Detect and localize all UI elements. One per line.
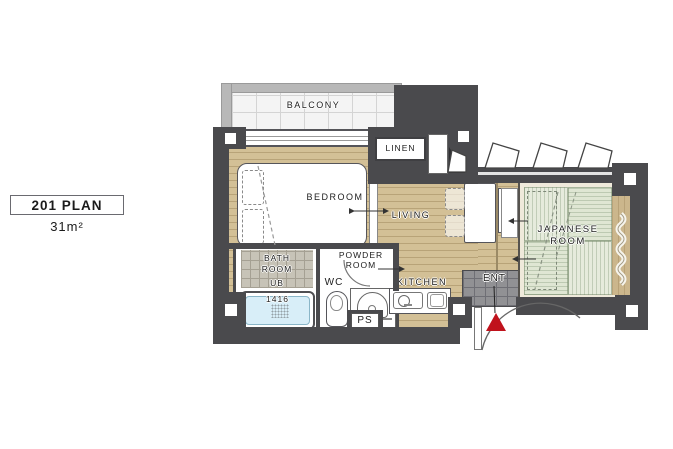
- floor-step-line: [496, 183, 498, 275]
- living-label: LIVING: [385, 210, 437, 220]
- japanese-room-label-line1: JAPANESE: [524, 224, 612, 235]
- wc-label: WC: [320, 277, 348, 288]
- column-marker: [457, 130, 470, 143]
- bathtub-size-label: 1416: [244, 294, 311, 304]
- powder-label-line1: POWDER: [326, 250, 396, 260]
- kitchen-counter: [389, 288, 451, 314]
- column-marker: [224, 132, 237, 145]
- wall-segment: [393, 243, 399, 291]
- bath-unit-label: UB: [241, 278, 313, 288]
- wall-segment: [316, 246, 320, 332]
- interior-door: [428, 134, 448, 174]
- chair: [445, 188, 465, 210]
- japanese-room-side-strip: [612, 187, 631, 295]
- kitchen-label: KITCHEN: [394, 277, 450, 287]
- balcony-railing-left: [221, 83, 232, 131]
- swing-window-icon: [485, 143, 519, 168]
- plan-area: 31m²: [10, 219, 124, 235]
- wall-segment: [394, 85, 478, 130]
- balcony-floor: [231, 92, 395, 131]
- swing-window-icon: [578, 143, 612, 168]
- wall-segment: [213, 327, 460, 344]
- pipe-space-label: PS: [351, 315, 379, 326]
- floor-plan-page: 201 PLAN 31m² BALCONY BEDROOM LIVING BAT…: [0, 0, 673, 449]
- column-marker: [452, 303, 466, 316]
- bathtub-hatch: [271, 304, 289, 318]
- sliding-door-bedroom: [369, 184, 378, 244]
- balcony-label: BALCONY: [232, 100, 395, 110]
- column-marker: [625, 304, 639, 318]
- plan-title: 201 PLAN: [10, 195, 124, 215]
- chair: [445, 215, 465, 237]
- dining-table: [464, 183, 496, 243]
- bedroom-label: BEDROOM: [295, 192, 375, 202]
- window-in-wall: [478, 172, 612, 175]
- japanese-room-label-line2: ROOM: [524, 236, 612, 247]
- balcony-railing-top: [221, 83, 402, 93]
- powder-label-line2: ROOM: [326, 260, 396, 270]
- tatami-mat: [568, 241, 612, 295]
- shoji-door: [501, 188, 518, 238]
- column-marker: [623, 172, 637, 186]
- column-marker: [224, 303, 238, 317]
- pillow: [242, 209, 264, 244]
- bathroom-label-line2: ROOM: [241, 264, 313, 274]
- swing-window-icon: [533, 143, 567, 168]
- toilet: [326, 291, 348, 327]
- linen-label: LINEN: [375, 143, 426, 153]
- wall-segment: [226, 243, 398, 249]
- pillow: [242, 170, 264, 205]
- bathroom-label-line1: BATH: [241, 253, 313, 263]
- entrance-door-leaf: [474, 307, 482, 350]
